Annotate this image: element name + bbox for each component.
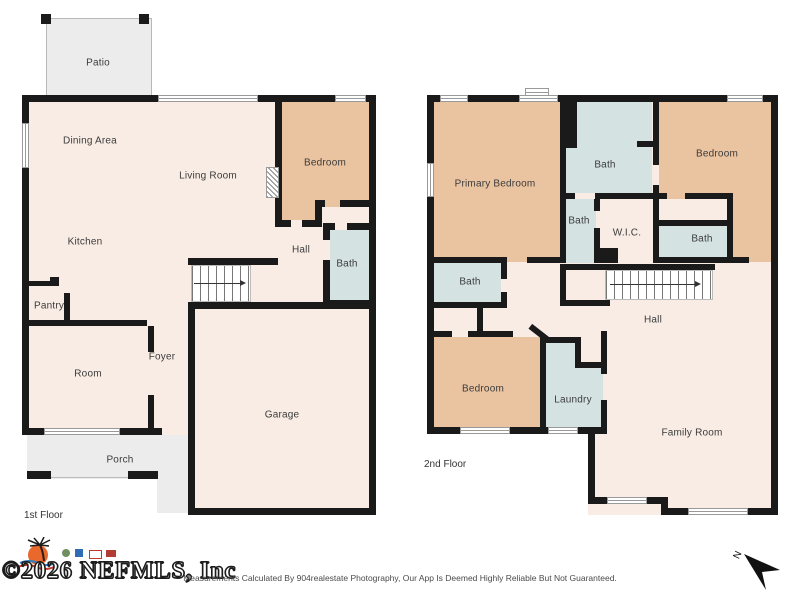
wall (546, 337, 575, 343)
wall (427, 302, 507, 308)
wall (148, 326, 154, 352)
bath-top-area (566, 102, 652, 193)
wall (595, 193, 655, 199)
floor-plan-page: Patio Dining Area Living Room Bedroom Ki… (0, 0, 800, 600)
window (427, 163, 434, 197)
wall (188, 302, 376, 309)
wall (275, 97, 282, 227)
window (44, 428, 120, 435)
window (519, 95, 558, 102)
wall (323, 223, 335, 230)
wall (653, 97, 659, 165)
wall (771, 95, 778, 515)
room-label-hall: Hall (292, 245, 310, 256)
wall (501, 292, 507, 308)
room-label-bath: Bath (336, 259, 357, 270)
wall (347, 223, 369, 230)
window (440, 95, 468, 102)
room-label-garage: Garage (265, 410, 300, 421)
wall (27, 471, 51, 479)
wall (340, 200, 371, 207)
room-label-bedroom-right: Bedroom (696, 149, 738, 160)
window (607, 497, 647, 504)
wall (560, 300, 610, 306)
wall (188, 258, 278, 265)
room-label-family-room: Family Room (661, 428, 722, 439)
room-label-living-room: Living Room (179, 171, 237, 182)
room-label-foyer: Foyer (149, 352, 176, 363)
room-label-bedroom: Bedroom (304, 158, 346, 169)
wall (27, 320, 147, 326)
wall (733, 257, 749, 263)
room-label-hall-second: Hall (644, 315, 662, 326)
room-label-primary-bedroom: Primary Bedroom (455, 179, 536, 190)
north-label: N (732, 550, 745, 561)
wall (601, 331, 607, 374)
room-label-porch: Porch (106, 455, 133, 466)
wall (588, 433, 595, 503)
north-arrow-icon: N (722, 540, 786, 592)
wall (540, 337, 546, 431)
porch-edge (51, 477, 128, 478)
patio-post (139, 14, 149, 24)
wall (427, 95, 778, 102)
wall (477, 305, 483, 331)
room-label-bedroom-lower: Bedroom (462, 384, 504, 395)
wall (600, 248, 618, 263)
wall (501, 257, 507, 279)
wall (685, 193, 733, 199)
room-label-patio: Patio (86, 58, 110, 69)
wall (527, 257, 566, 263)
wall (653, 220, 733, 226)
floor-label-second: 2nd Floor (424, 459, 466, 470)
wall (594, 228, 600, 263)
wall (563, 193, 575, 199)
room-label-bath-left: Bath (459, 277, 480, 288)
bedroom-closet (322, 207, 371, 220)
room-label-room: Room (74, 369, 101, 380)
room-label-bath-middle: Bath (568, 216, 589, 227)
wall (427, 95, 434, 433)
wall (601, 400, 607, 431)
room-label-laundry: Laundry (554, 395, 592, 406)
window (548, 427, 578, 434)
realtor-badge-icon (75, 549, 83, 557)
wall (427, 427, 607, 434)
window (460, 427, 510, 434)
wall (653, 257, 733, 263)
room-label-pantry: Pantry (34, 301, 64, 312)
wall (315, 200, 322, 227)
stairs-direction-arrow (194, 283, 240, 284)
wall (427, 331, 452, 337)
wall (64, 293, 70, 326)
wall (427, 257, 507, 263)
wall (594, 199, 600, 211)
wall (188, 302, 195, 515)
window (335, 95, 366, 102)
wall (468, 331, 513, 337)
wall (653, 193, 667, 199)
disclaimer-text: Measurements Calculated By 904realestate… (183, 573, 617, 583)
wall (50, 277, 59, 286)
patio-post (41, 14, 51, 24)
wall (190, 508, 376, 515)
garage-area (190, 435, 376, 513)
fireplace (266, 167, 279, 198)
window (688, 508, 748, 515)
room-label-bath-right: Bath (691, 234, 712, 245)
bath-middle-area (565, 199, 596, 263)
window (158, 95, 258, 102)
wall (275, 220, 291, 227)
floor-label-first: 1st Floor (24, 510, 63, 521)
room-label-bath-top: Bath (594, 160, 615, 171)
wall (148, 395, 154, 435)
association-badge-icon (62, 549, 70, 557)
bedroom-right-closet (659, 199, 727, 220)
room-label-kitchen: Kitchen (68, 237, 103, 248)
wall (128, 471, 158, 479)
room-label-dining-area: Dining Area (63, 136, 117, 147)
room-label-wic: W.I.C. (613, 228, 641, 239)
wall (727, 193, 733, 263)
stairs-direction-arrow (610, 284, 695, 285)
window (727, 95, 763, 102)
equal-housing-badge-icon (106, 550, 116, 557)
entry-walkway (157, 435, 190, 513)
wall (560, 102, 566, 262)
window (22, 123, 29, 168)
